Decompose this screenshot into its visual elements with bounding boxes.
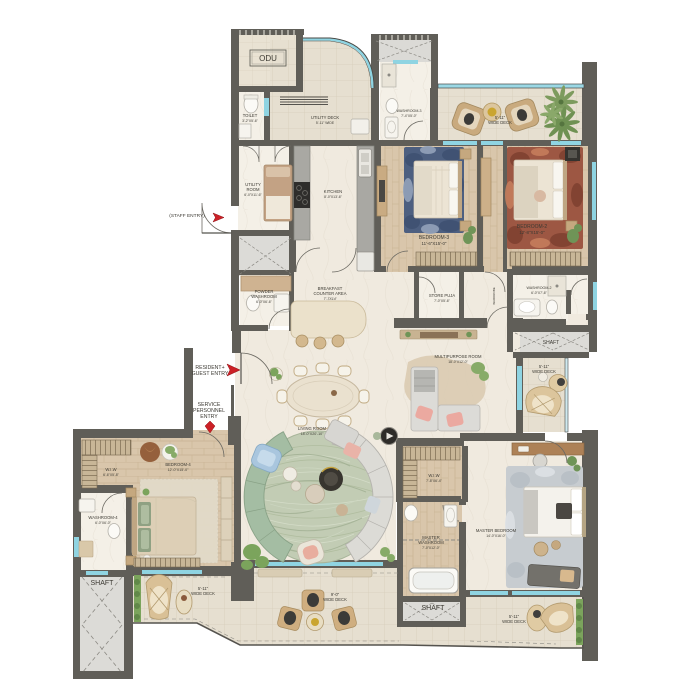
- svg-text:WIDE DECK: WIDE DECK: [488, 120, 512, 125]
- svg-text:WASHROOM-3: WASHROOM-3: [396, 109, 421, 113]
- svg-text:7'-0"X12'-0": 7'-0"X12'-0": [422, 546, 440, 550]
- svg-text:LIVING ROOM: LIVING ROOM: [298, 426, 326, 431]
- svg-text:BEDROOM-4: BEDROOM-4: [165, 462, 191, 467]
- svg-text:7'-0"X5'-6": 7'-0"X5'-6": [434, 299, 451, 303]
- svg-text:GUEST ENTRY: GUEST ENTRY: [192, 371, 229, 377]
- svg-text:WIDE DECK: WIDE DECK: [323, 597, 347, 602]
- svg-text:12'-8"X15'-0": 12'-8"X15'-0": [519, 230, 545, 235]
- svg-text:MULTIPURPOSE ROOM: MULTIPURPOSE ROOM: [435, 354, 482, 359]
- svg-text:W.I.W: W.I.W: [105, 467, 116, 472]
- svg-text:(STAFF ENTRY): (STAFF ENTRY): [169, 213, 205, 219]
- svg-text:5'-11" WIDE: 5'-11" WIDE: [316, 121, 335, 125]
- svg-text:7'-8"X6'-4": 7'-8"X6'-4": [426, 479, 443, 483]
- svg-text:W.I.W: W.I.W: [428, 473, 439, 478]
- svg-text:12'-0"X15'-0": 12'-0"X15'-0": [168, 468, 189, 472]
- svg-text:MASTER BEDROOM: MASTER BEDROOM: [476, 528, 517, 533]
- svg-text:WASHROOM: WASHROOM: [251, 294, 277, 299]
- svg-text:6'-0"X7'-6": 6'-0"X7'-6": [531, 291, 548, 295]
- svg-text:6'-0"X11'-6": 6'-0"X11'-6": [244, 193, 262, 197]
- svg-text:TOILET: TOILET: [243, 113, 258, 118]
- svg-text:6'-0"X6'-6": 6'-0"X6'-6": [256, 300, 273, 304]
- svg-text:WARDROBE: WARDROBE: [492, 287, 496, 305]
- svg-text:STORE PUJA: STORE PUJA: [429, 293, 455, 298]
- svg-text:6'-6"X5'-8": 6'-6"X5'-8": [103, 473, 120, 477]
- svg-text:6'-0"X6'-0": 6'-0"X6'-0": [95, 521, 112, 525]
- svg-text:14'-0"X16'-0": 14'-0"X16'-0": [486, 534, 506, 538]
- svg-text:3'-2"X5'-6": 3'-2"X5'-6": [242, 119, 259, 123]
- svg-text:18'-0"X20'-10": 18'-0"X20'-10": [301, 432, 324, 436]
- svg-text:WASHROOM: WASHROOM: [418, 540, 444, 545]
- svg-text:SHAFT: SHAFT: [422, 605, 446, 612]
- svg-text:ODU: ODU: [259, 54, 277, 63]
- svg-text:WASHROOM-2: WASHROOM-2: [526, 286, 551, 290]
- svg-text:WIDE DECK: WIDE DECK: [532, 369, 556, 374]
- svg-text:UTILITY DECK: UTILITY DECK: [311, 115, 340, 120]
- svg-text:ENTRY: ENTRY: [200, 414, 218, 420]
- svg-text:ROOM: ROOM: [246, 187, 260, 192]
- svg-text:18'-0"X12'-0": 18'-0"X12'-0": [448, 360, 468, 364]
- svg-text:KITCHEN: KITCHEN: [324, 189, 342, 194]
- svg-text:COUNTER AREA: COUNTER AREA: [313, 291, 346, 296]
- svg-text:7'-7X14': 7'-7X14': [324, 297, 337, 301]
- svg-text:WIDE DECK: WIDE DECK: [502, 619, 526, 624]
- svg-text:WIDE DECK: WIDE DECK: [191, 591, 215, 596]
- svg-text:8'-0"X13'-6": 8'-0"X13'-6": [324, 195, 342, 199]
- svg-text:WASHROOM-4: WASHROOM-4: [88, 515, 118, 520]
- svg-text:SHAFT: SHAFT: [91, 580, 115, 587]
- svg-text:SHAFT: SHAFT: [543, 340, 559, 346]
- svg-text:7'-4"X5'-0": 7'-4"X5'-0": [401, 114, 418, 118]
- svg-text:11'-6"X15'-0": 11'-6"X15'-0": [422, 241, 447, 246]
